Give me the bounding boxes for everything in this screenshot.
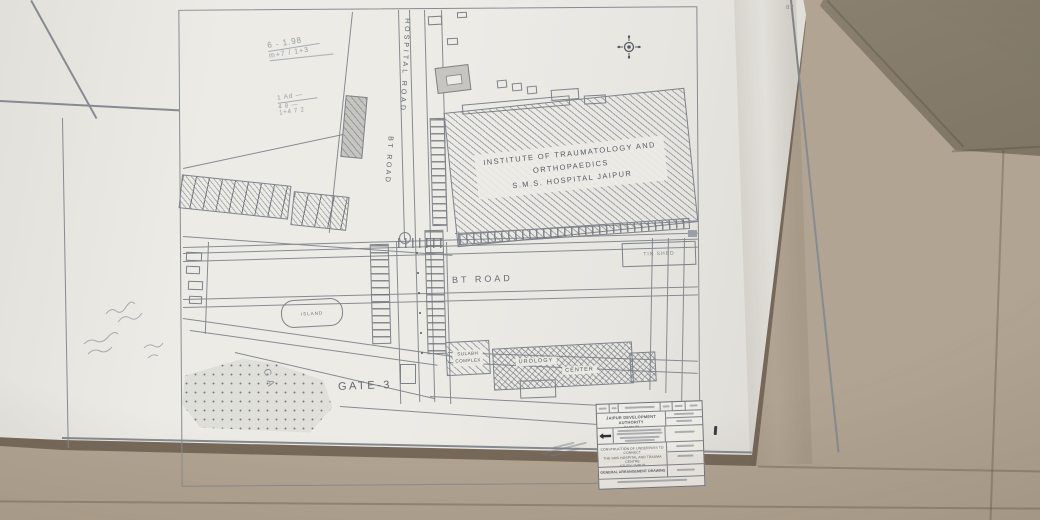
shop-building (435, 64, 472, 94)
small-structure (447, 38, 458, 46)
small-structure (512, 83, 523, 92)
small-structure (400, 364, 416, 384)
building-annex (629, 351, 657, 382)
pole-dot (419, 312, 421, 314)
pole-dot (420, 332, 422, 334)
paper-crease (62, 118, 69, 448)
paper-fold-shade (734, 0, 813, 466)
island-label: ISLAND (301, 310, 323, 316)
row-shops (290, 191, 349, 231)
small-building (520, 379, 557, 398)
compass-rose-icon (616, 34, 642, 60)
traffic-island: ISLAND (280, 297, 343, 328)
main-building-label: INSTITUTE OF TRAUMATOLOGY AND ORTHOPAEDI… (475, 136, 668, 200)
pole-dot (418, 292, 420, 294)
jda-logo-icon (599, 433, 611, 439)
center-label-line2: CENTER (562, 365, 597, 375)
corner-page-mark: 82 (786, 5, 795, 11)
small-structure (497, 80, 508, 89)
pen-mark (714, 426, 718, 435)
pole-dot (417, 272, 419, 274)
pole-dot (416, 252, 418, 254)
small-structure (186, 266, 200, 274)
gate3-label: GATE-3 (338, 379, 392, 393)
drawing-title: GENERAL ARRANGEMENT DRAWING (599, 468, 667, 475)
small-structure (457, 12, 467, 19)
tin-shed: TIN SHED (622, 241, 697, 268)
shop-label-box (446, 74, 463, 86)
bus-bay-strip (430, 118, 448, 226)
underpass-ramp (370, 244, 392, 344)
drawing-sheet: INSTITUTE OF TRAUMATOLOGY AND ORTHOPAEDI… (0, 0, 1040, 520)
sulabh-label-line2: COMPLEX (455, 357, 481, 365)
small-structure (527, 86, 538, 95)
sulabh-complex-building: SULABH COMPLEX (445, 340, 491, 376)
small-structure (688, 230, 697, 237)
small-structure (584, 94, 606, 104)
sulabh-label: SULABH COMPLEX (453, 349, 483, 366)
junction-circle (399, 232, 411, 244)
small-structure (428, 16, 442, 26)
underpass-ramp (424, 230, 446, 354)
title-block: JAIPUR DEVELOPMENT AUTHORITY JAIPUR CONS… (596, 400, 706, 490)
road-label-bt-road: BT ROAD (452, 273, 513, 285)
pole-dot (421, 352, 423, 354)
urology-center-building: UROLOGY CENTER (492, 341, 634, 390)
center-label-line1: UROLOGY (516, 356, 557, 366)
tin-shed-label: TIN SHED (643, 250, 675, 257)
pencil-scribbles (78, 288, 198, 368)
small-structure (186, 252, 202, 262)
